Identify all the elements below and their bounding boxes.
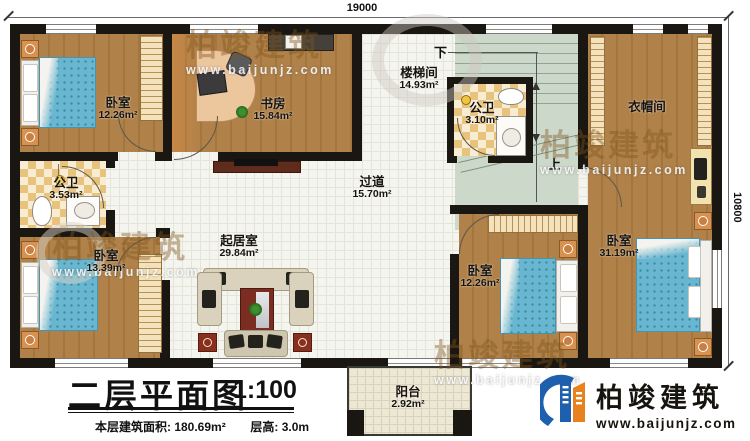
nightstand-icon bbox=[21, 331, 39, 349]
stair-up-label: 上 bbox=[548, 154, 561, 173]
wall bbox=[160, 228, 170, 238]
brand-name: 柏竣建筑 bbox=[596, 376, 737, 415]
computer-monitor-icon bbox=[197, 70, 228, 96]
wall bbox=[450, 205, 588, 214]
wall bbox=[526, 77, 533, 163]
floorplan-canvas: 19000 10800 下 上 bbox=[0, 0, 750, 441]
room-label-stairwell: 楼梯间 14.93m² bbox=[386, 66, 452, 92]
floor-area-label: 本层建筑面积: 180.69m² bbox=[95, 420, 226, 434]
dimension-line-top bbox=[8, 17, 729, 18]
wall bbox=[163, 24, 172, 161]
room-area: 12.26m² bbox=[85, 110, 151, 122]
pillow-icon bbox=[23, 64, 38, 92]
nightstand-icon bbox=[694, 338, 712, 356]
wall bbox=[488, 156, 533, 163]
room-label-bedroom-1: 卧室 12.26m² bbox=[85, 96, 151, 122]
wall bbox=[578, 214, 588, 368]
room-area: 31.19m² bbox=[588, 248, 650, 260]
wall-picture bbox=[285, 35, 302, 49]
room-area: 14.93m² bbox=[386, 80, 452, 92]
wall-left bbox=[10, 24, 20, 368]
room-name: 卧室 bbox=[588, 234, 650, 248]
room-name: 衣帽间 bbox=[615, 100, 679, 114]
window bbox=[213, 358, 301, 368]
title-underline-thin bbox=[68, 412, 294, 413]
room-area: 2.92m² bbox=[378, 399, 438, 411]
room-name: 起居室 bbox=[207, 234, 271, 248]
dimension-tick bbox=[3, 11, 13, 21]
room-label-bedroom-3: 卧室 31.19m² bbox=[588, 234, 650, 260]
pillow-icon bbox=[23, 94, 38, 122]
dresser-item bbox=[697, 186, 706, 198]
side-table-icon bbox=[198, 333, 217, 352]
balcony-post bbox=[453, 410, 472, 436]
stair-direction-line bbox=[536, 52, 537, 202]
nightstand-icon bbox=[694, 212, 712, 230]
pillow-icon bbox=[688, 246, 701, 278]
room-name: 公卫 bbox=[456, 101, 508, 115]
window bbox=[486, 24, 552, 34]
pillow-icon bbox=[23, 296, 38, 324]
window bbox=[190, 24, 258, 34]
nightstand-icon bbox=[559, 240, 577, 258]
wall-right bbox=[712, 24, 722, 368]
brand-website: www.baijunjz.com bbox=[596, 416, 737, 431]
wall bbox=[155, 152, 172, 161]
sofa-cushion bbox=[248, 335, 263, 348]
room-area: 3.10m² bbox=[456, 115, 508, 127]
window bbox=[610, 358, 688, 368]
room-label-cloakroom: 衣帽间 bbox=[615, 100, 679, 114]
brand-logo-icon bbox=[540, 372, 590, 434]
nightstand-icon bbox=[21, 40, 39, 58]
nightstand-icon bbox=[559, 332, 577, 350]
brand-logo: 柏竣建筑 www.baijunjz.com bbox=[540, 372, 737, 434]
room-name: 阳台 bbox=[378, 385, 438, 399]
sofa-cushion bbox=[295, 290, 309, 308]
stair-arrow-down-icon bbox=[532, 134, 540, 142]
watermark-swirl-icon bbox=[372, 14, 482, 106]
room-name: 公卫 bbox=[38, 176, 94, 190]
room-area: 15.84m² bbox=[240, 111, 306, 123]
window bbox=[712, 250, 722, 308]
dimension-top-label: 19000 bbox=[330, 2, 394, 14]
room-label-bedroom-2: 卧室 13.39m² bbox=[76, 249, 136, 275]
wardrobe-icon bbox=[590, 36, 605, 146]
stair-arrow-up-icon bbox=[532, 82, 540, 90]
tv-icon bbox=[234, 159, 278, 166]
window bbox=[55, 358, 128, 368]
room-label-study: 书房 15.84m² bbox=[240, 97, 306, 123]
dimension-line-right bbox=[728, 17, 729, 367]
room-area: 3.53m² bbox=[38, 190, 94, 202]
bed-sheet-fold bbox=[40, 58, 58, 127]
sofa-cushion bbox=[266, 334, 283, 349]
room-name: 卧室 bbox=[450, 264, 510, 278]
title-underline bbox=[68, 407, 294, 410]
nightstand-icon bbox=[21, 128, 39, 146]
room-name: 卧室 bbox=[85, 96, 151, 110]
window bbox=[688, 24, 708, 34]
room-label-bedroom-4: 卧室 12.26m² bbox=[450, 264, 510, 290]
wall bbox=[352, 24, 362, 161]
wall bbox=[106, 152, 115, 168]
plant-icon bbox=[249, 303, 262, 316]
room-area: 15.70m² bbox=[342, 189, 402, 201]
room-label-balcony: 阳台 2.92m² bbox=[378, 385, 438, 411]
room-label-corridor: 过道 15.70m² bbox=[342, 175, 402, 201]
wardrobe-icon bbox=[697, 36, 712, 146]
room-area: 12.26m² bbox=[450, 278, 510, 290]
room-label-bathroom-1: 公卫 3.53m² bbox=[38, 176, 94, 202]
side-table-icon bbox=[293, 333, 312, 352]
window bbox=[633, 24, 663, 34]
room-name: 过道 bbox=[342, 175, 402, 189]
sofa-cushion bbox=[228, 334, 245, 349]
room-name: 卧室 bbox=[76, 249, 136, 263]
pillow-icon bbox=[688, 286, 701, 318]
plan-stats: 本层建筑面积: 180.69m² 层高: 3.0m bbox=[95, 418, 309, 435]
balcony-post bbox=[347, 410, 364, 436]
wall bbox=[578, 24, 588, 169]
room-name: 楼梯间 bbox=[386, 66, 452, 80]
room-label-bathroom-2: 公卫 3.10m² bbox=[456, 101, 508, 127]
dimension-right-label: 10800 bbox=[731, 192, 743, 223]
wall bbox=[10, 152, 118, 161]
window bbox=[46, 24, 96, 34]
wall bbox=[447, 156, 457, 163]
room-area: 29.84m² bbox=[207, 248, 271, 260]
wardrobe-icon bbox=[488, 215, 578, 233]
pillow-icon bbox=[23, 266, 38, 294]
pillow-icon bbox=[560, 296, 577, 324]
room-label-living-room: 起居室 29.84m² bbox=[207, 234, 271, 260]
room-name: 书房 bbox=[240, 97, 306, 111]
sofa-cushion bbox=[202, 290, 216, 308]
room-area: 13.39m² bbox=[76, 263, 136, 275]
sink-icon bbox=[502, 128, 521, 147]
dresser-tv-icon bbox=[694, 158, 707, 180]
floor-height-label: 层高: 3.0m bbox=[250, 420, 309, 434]
wall-top bbox=[10, 24, 722, 34]
plan-scale: 1:100 bbox=[233, 376, 297, 405]
pillow-icon bbox=[560, 264, 577, 292]
bed-headboard bbox=[700, 240, 712, 332]
